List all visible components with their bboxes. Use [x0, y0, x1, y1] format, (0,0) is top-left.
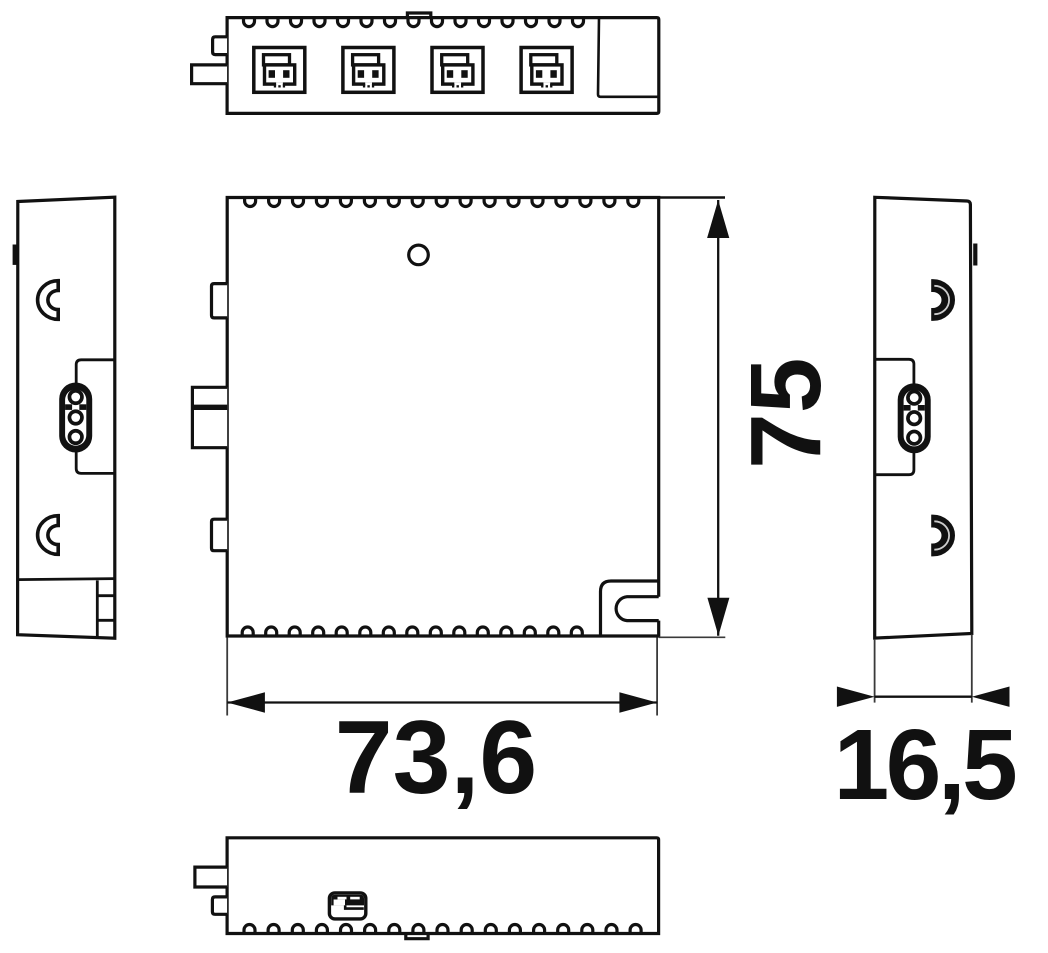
svg-text:75: 75 — [730, 358, 842, 469]
svg-text:16,5: 16,5 — [834, 709, 1016, 821]
svg-text:73,6: 73,6 — [335, 700, 537, 816]
